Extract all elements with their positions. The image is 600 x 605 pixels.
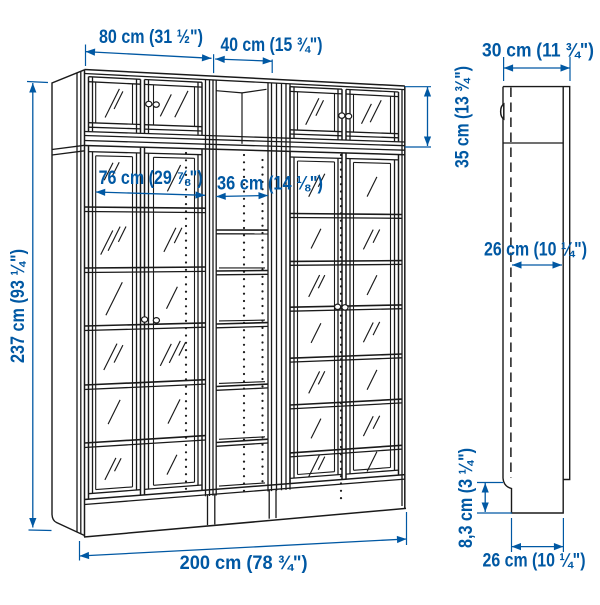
svg-text:200 cm (78 ¾"): 200 cm (78 ¾")	[180, 553, 308, 574]
svg-text:8,3 cm (3 ¼"): 8,3 cm (3 ¼")	[456, 448, 477, 548]
svg-text:80 cm (31 ½"): 80 cm (31 ½")	[99, 27, 203, 48]
svg-text:76 cm (29 ⅞"): 76 cm (29 ⅞")	[99, 168, 203, 189]
svg-text:26 cm (10 ¼"): 26 cm (10 ¼")	[484, 240, 587, 261]
svg-text:26 cm (10 ¼"): 26 cm (10 ¼")	[483, 551, 586, 572]
svg-text:35 cm (13 ¾"): 35 cm (13 ¾")	[453, 66, 474, 168]
svg-text:237 cm (93 ¼"): 237 cm (93 ¼")	[8, 249, 29, 363]
svg-text:40 cm (15 ¾"): 40 cm (15 ¾")	[221, 35, 323, 56]
svg-text:36 cm (14 ⅛"): 36 cm (14 ⅛")	[217, 174, 323, 195]
svg-text:30 cm (11 ¾"): 30 cm (11 ¾")	[482, 41, 594, 62]
